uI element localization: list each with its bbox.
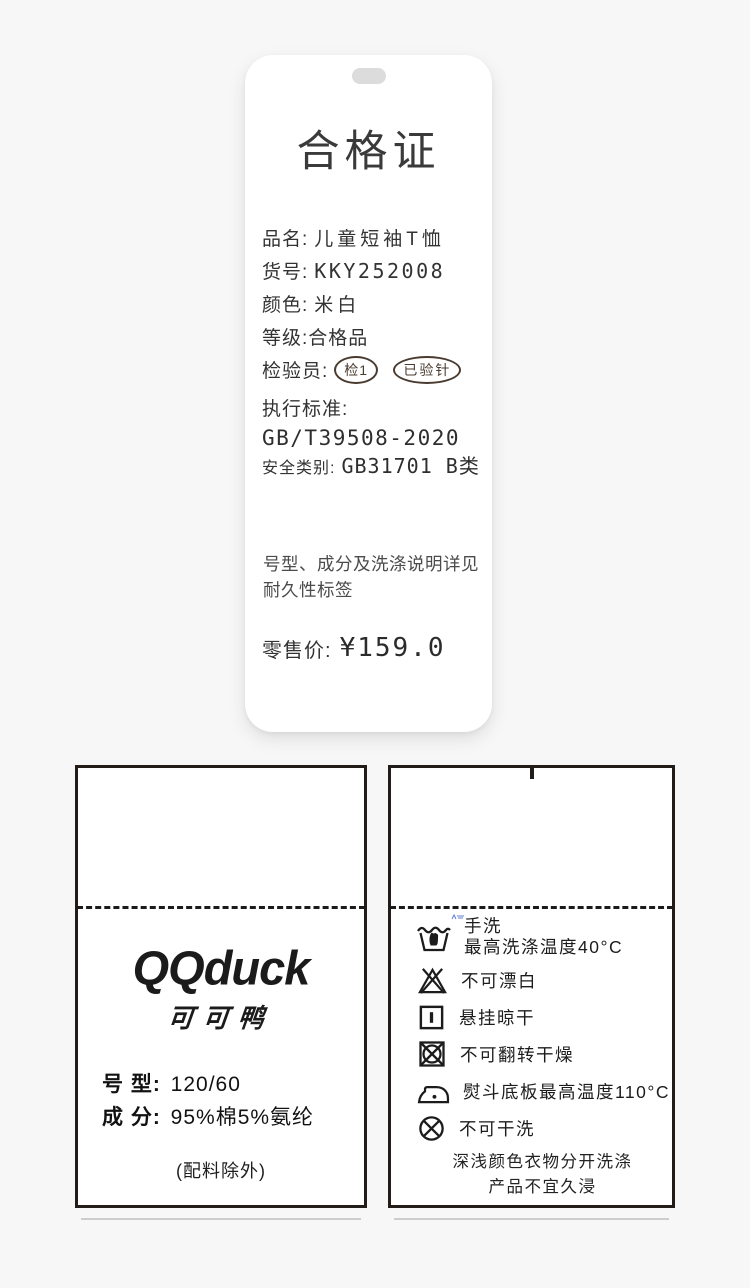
- field-label: 货号:: [262, 257, 308, 284]
- field-value: 儿童短袖T恤: [314, 224, 445, 251]
- care-text: 手洗 最高洗涤温度40°C: [464, 916, 623, 958]
- standard-block: 执行标准: GB/T39508-2020 安全类别: GB31701 B类: [262, 396, 486, 483]
- care-text: 不可干洗: [459, 1116, 535, 1141]
- care-text: 熨斗底板最高温度110°C: [463, 1079, 670, 1104]
- standard-value: GB/T39508-2020: [262, 424, 486, 452]
- care-row-no-dry-clean: 不可干洗: [417, 1113, 668, 1143]
- fold-dashed-line: [77, 906, 365, 909]
- field-row-color: 颜色: 米白: [262, 287, 486, 320]
- handwash-icon: [417, 921, 451, 952]
- inspector-stamps: 检1 已验针: [334, 356, 461, 384]
- needle-checked-stamp: 已验针: [393, 356, 461, 384]
- care-text: 悬挂晾干: [459, 1005, 535, 1030]
- iron-max-110-icon: [417, 1078, 450, 1105]
- safety-category-row: 安全类别: GB31701 B类: [262, 452, 486, 483]
- size-row: 号 型: 120/60: [102, 1068, 314, 1101]
- footnote-line-2: 产品不宜久浸: [417, 1175, 668, 1200]
- price-value: ¥159.0: [340, 633, 446, 663]
- care-text: 不可漂白: [461, 968, 537, 993]
- composition-value: 95%棉5%氨纶: [171, 1106, 314, 1129]
- inspector-stamp: 检1: [334, 356, 378, 384]
- field-row-inspector: 检验员: 检1 已验针: [262, 353, 486, 386]
- footnote-line-1: 深浅颜色衣物分开洗涤: [417, 1150, 668, 1175]
- brand-block: QQduck 可可鸭: [78, 940, 364, 1035]
- care-symbol-list: 手洗 最高洗涤温度40°C 不可漂白 悬挂晾干: [417, 914, 668, 1200]
- field-value: KKY252008: [314, 259, 445, 283]
- care-row-hang-dry: 悬挂晾干: [417, 1002, 668, 1032]
- quality-certificate-hang-tag: 合格证 品名: 儿童短袖T恤 货号: KKY252008 颜色: 米白 等级: …: [245, 55, 492, 732]
- fold-dashed-line: [390, 906, 673, 909]
- note-line-2: 耐久性标签: [263, 580, 353, 600]
- brand-size-label: QQduck 可可鸭 号 型: 120/60 成 分: 95%棉5%氨纶 (配料…: [75, 765, 367, 1208]
- care-text: 不可翻转干燥: [460, 1042, 574, 1067]
- certificate-title: 合格证: [245, 117, 492, 179]
- care-row-iron-max-110: 熨斗底板最高温度110°C: [417, 1076, 668, 1106]
- accessories-excluded-note: (配料除外): [78, 1157, 364, 1183]
- field-row-grade: 等级: 合格品: [262, 320, 486, 353]
- certificate-fields: 品名: 儿童短袖T恤 货号: KKY252008 颜色: 米白 等级: 合格品 …: [262, 221, 486, 386]
- field-label: 颜色:: [262, 290, 308, 317]
- brand-logo-en: QQduck: [78, 939, 364, 996]
- care-row-handwash: 手洗 最高洗涤温度40°C: [417, 914, 668, 959]
- safety-label: 安全类别:: [262, 455, 335, 483]
- hang-dry-icon: [417, 1003, 446, 1032]
- note-line-1: 号型、成分及洗涤说明详见: [263, 554, 479, 574]
- top-cut-mark: [530, 767, 534, 779]
- price-label: 零售价:: [262, 634, 332, 663]
- field-value: 米白: [314, 290, 360, 317]
- retail-price-row: 零售价: ¥159.0: [262, 633, 445, 663]
- composition-row: 成 分: 95%棉5%氨纶: [102, 1101, 314, 1134]
- field-label: 检验员:: [262, 356, 328, 383]
- composition-label: 成 分:: [102, 1106, 161, 1129]
- wash-footnote: 深浅颜色衣物分开洗涤 产品不宜久浸: [417, 1150, 668, 1200]
- field-row-product-name: 品名: 儿童短袖T恤: [262, 221, 486, 254]
- care-row-no-tumble-dry: 不可翻转干燥: [417, 1039, 668, 1069]
- no-tumble-dry-icon: [417, 1039, 447, 1069]
- standard-label: 执行标准:: [262, 396, 486, 424]
- field-row-item-number: 货号: KKY252008: [262, 254, 486, 287]
- field-label: 品名:: [262, 224, 308, 251]
- safety-value: GB31701 B类: [341, 452, 479, 480]
- brand-logo-cn: 可可鸭: [167, 998, 276, 1035]
- no-dry-clean-icon: [417, 1114, 446, 1143]
- size-label: 号 型:: [102, 1073, 161, 1096]
- hang-tag-hole: [352, 68, 386, 84]
- durability-label-note: 号型、成分及洗涤说明详见 耐久性标签: [263, 551, 482, 603]
- no-bleach-icon: [417, 966, 448, 995]
- field-value: 合格品: [308, 323, 368, 350]
- care-instructions-label: 手洗 最高洗涤温度40°C 不可漂白 悬挂晾干: [388, 765, 675, 1208]
- size-value: 120/60: [171, 1073, 241, 1096]
- size-composition-rows: 号 型: 120/60 成 分: 95%棉5%氨纶: [102, 1068, 314, 1134]
- field-label: 等级:: [262, 323, 308, 350]
- care-row-no-bleach: 不可漂白: [417, 965, 668, 995]
